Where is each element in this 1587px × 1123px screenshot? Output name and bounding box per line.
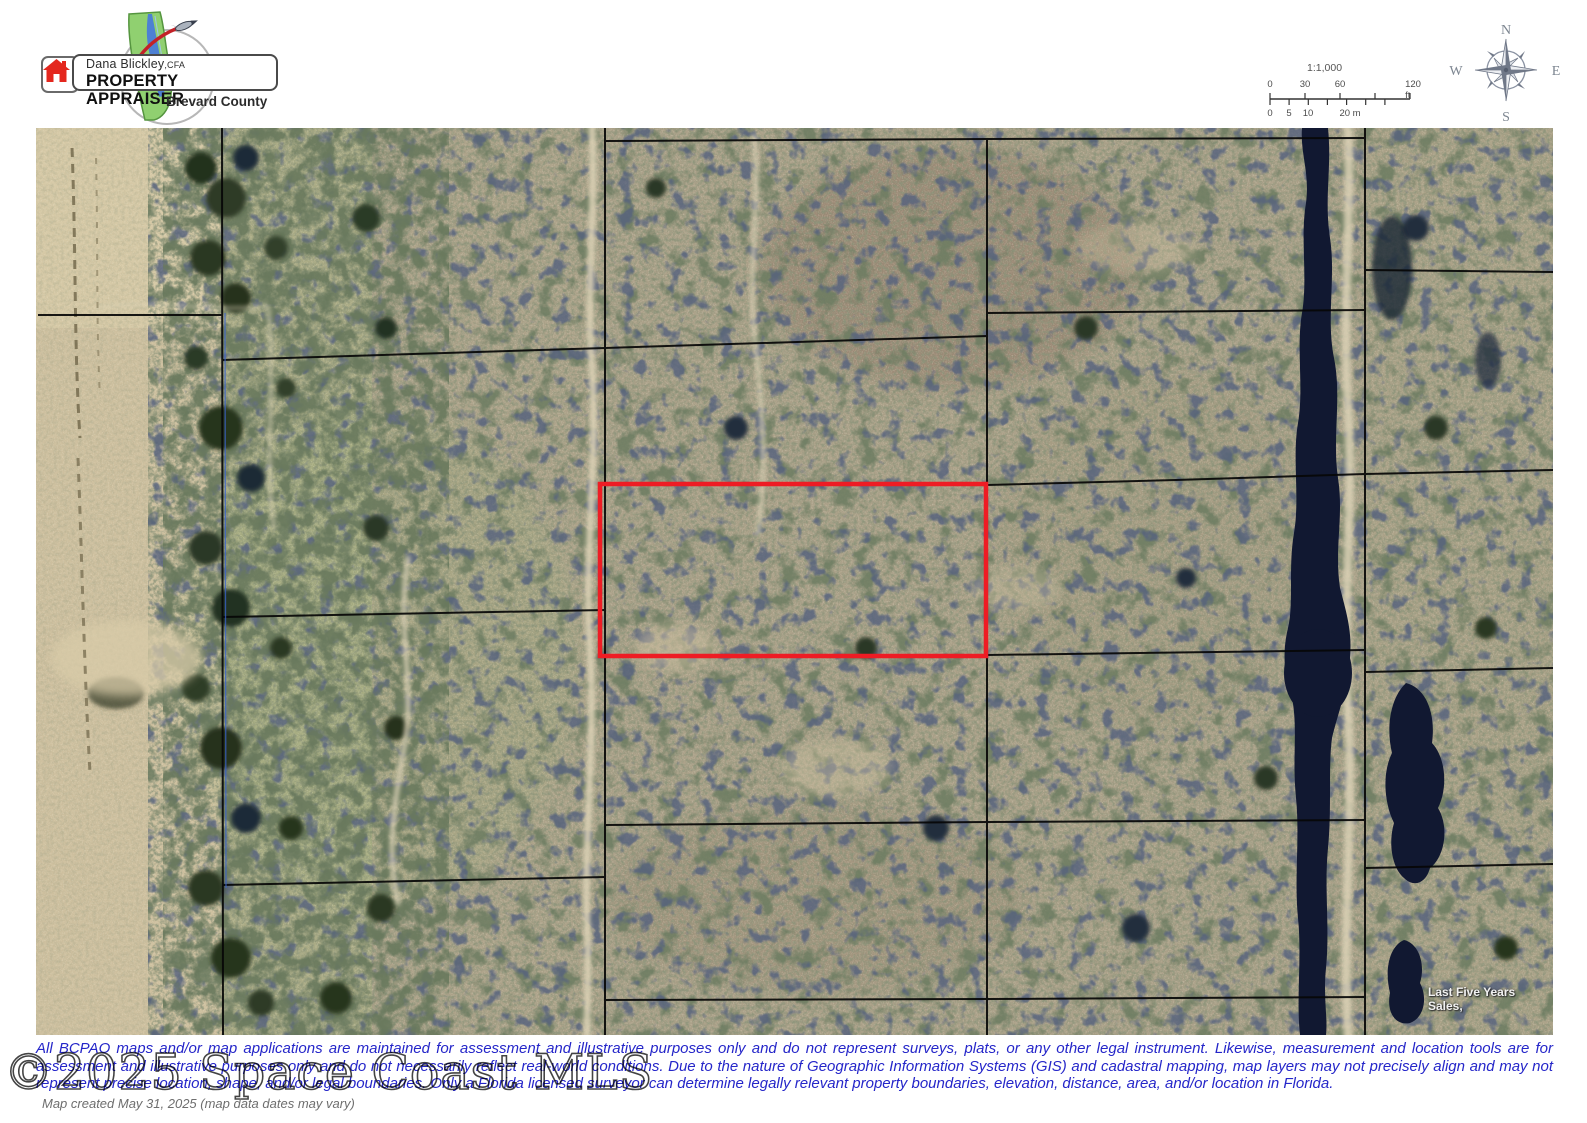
scale-m-tick-label: 10 <box>1303 108 1314 119</box>
logo-county-label: Brevard County <box>166 94 267 109</box>
scale-ft-tick-label: 0 <box>1267 79 1272 90</box>
scale-m-tick-label: 20 m <box>1339 108 1360 119</box>
compass-rose-icon: N E S W <box>1444 18 1568 128</box>
compass-west-label: W <box>1449 64 1463 79</box>
map-created-label: Map created May 31, 2025 (map data dates… <box>42 1096 355 1111</box>
compass-east-label: E <box>1552 64 1561 79</box>
scale-bar: 1:1,000 0 30 60 120 ft 0 5 10 20 m <box>1245 60 1420 120</box>
scale-ft-tick-label: 30 <box>1300 79 1311 90</box>
scale-m-tick-label: 5 <box>1286 108 1291 119</box>
mls-watermark: ©2025 Space Coast MLS <box>4 1044 653 1101</box>
map-layer-label: Last Five Years Sales, <box>1428 985 1553 1013</box>
page: Dana Blickley,CFA PROPERTY APPRAISER Bre… <box>0 0 1587 1123</box>
house-icon <box>43 58 70 83</box>
scale-ratio: 1:1,000 <box>1307 62 1342 74</box>
scale-m-tick-label: 0 <box>1267 108 1272 119</box>
compass-north-label: N <box>1501 23 1511 38</box>
aerial-imagery <box>36 128 1553 1035</box>
map-canvas[interactable]: Last Five Years Sales, <box>36 128 1553 1035</box>
bcpao-logo: Dana Blickley,CFA PROPERTY APPRAISER Bre… <box>34 6 334 124</box>
scale-ft-tick-label: 60 <box>1335 79 1346 90</box>
compass-rose: N E S W <box>1444 18 1568 128</box>
compass-south-label: S <box>1502 110 1510 125</box>
appraiser-name: Dana Blickley,CFA <box>86 58 276 72</box>
appraiser-name-box: Dana Blickley,CFA PROPERTY APPRAISER <box>72 54 278 91</box>
